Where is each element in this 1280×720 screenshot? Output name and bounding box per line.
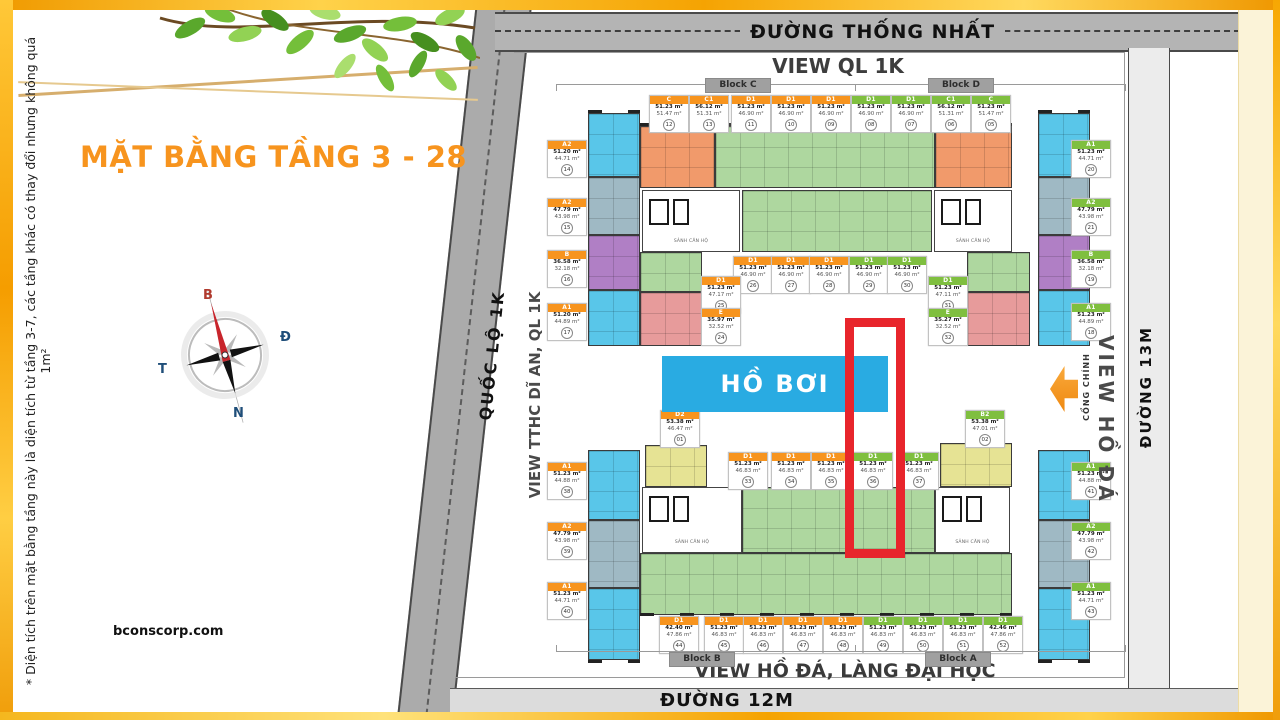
compass-rose: [155, 285, 295, 425]
compass-south-label: N: [233, 406, 244, 421]
bracket-tick: [1125, 645, 1126, 652]
unit-card-B2[interactable]: B253.38 m²47.01 m²02: [965, 410, 1005, 448]
unit-area-net: 47.86 m²: [984, 632, 1022, 639]
unit-area-gross: 51.23 m²: [852, 104, 890, 111]
unit-code: D1: [944, 617, 982, 625]
view-label-right: VIEW HỒ ĐÁ: [1094, 335, 1118, 504]
unit-card-D1[interactable]: D151.23 m²46.90 m²09: [811, 95, 851, 133]
unit-number-badge: 08: [865, 119, 877, 131]
elevator-core: [942, 496, 962, 522]
unit-card-A2[interactable]: A247.79 m²43.98 m²39: [547, 522, 587, 560]
unit-card-D1[interactable]: D151.23 m²46.90 m²08: [851, 95, 891, 133]
unit-g: [742, 487, 935, 553]
unit-card-D1[interactable]: D151.23 m²46.83 m²48: [823, 616, 863, 654]
unit-code: D1: [900, 453, 938, 461]
unit-area-gross: 51.23 m²: [1072, 591, 1110, 598]
unit-code: D1: [850, 257, 888, 265]
gold-frame-bottom: [0, 712, 1280, 720]
unit-area-gross: 51.23 m²: [972, 104, 1010, 111]
unit-card-D1[interactable]: D151.23 m²46.83 m²33: [728, 452, 768, 490]
unit-code: D1: [888, 257, 926, 265]
elevator-core: [966, 496, 982, 522]
unit-card-E[interactable]: E35.27 m²32.52 m²32: [928, 308, 968, 346]
unit-area-net: 44.71 m²: [548, 156, 586, 163]
unit-code: A1: [548, 304, 586, 312]
unit-code: D2: [661, 411, 699, 419]
unit-code: B: [1072, 251, 1110, 259]
block-b-label: Block B: [669, 652, 735, 667]
unit-area-net: 46.90 m²: [772, 272, 810, 279]
unit-number-badge: 43: [1085, 606, 1097, 618]
unit-area-gross: 35.97 m²: [702, 317, 740, 324]
unit-g: [742, 190, 932, 252]
unit-area-gross: 47.79 m²: [548, 531, 586, 538]
unit-area-net: 46.83 m²: [900, 468, 938, 475]
unit-area-gross: 51.23 m²: [650, 104, 688, 111]
bracket-tick: [556, 645, 557, 652]
unit-s: [588, 177, 640, 235]
unit-area-gross: 36.58 m²: [1072, 259, 1110, 266]
unit-card-A1[interactable]: A151.23 m²44.71 m²43: [1071, 582, 1111, 620]
unit-area-net: 46.90 m²: [892, 111, 930, 118]
unit-area-gross: 51.23 m²: [784, 625, 822, 632]
view-label-left: VIEW TTHC DĨ AN, QL 1K: [526, 285, 542, 505]
unit-number-badge: 10: [785, 119, 797, 131]
elevator-core: [673, 496, 689, 522]
unit-number-badge: 26: [747, 280, 759, 292]
unit-code: A2: [548, 141, 586, 149]
unit-area-net: 32.18 m²: [548, 266, 586, 273]
unit-code: C: [972, 96, 1010, 104]
unit-code: D1: [864, 617, 902, 625]
gold-frame-top: [0, 0, 1280, 10]
unit-code: E: [702, 309, 740, 317]
unit-code: D1: [734, 257, 772, 265]
elevator-core: [941, 199, 961, 225]
unit-area-net: 46.90 m²: [732, 111, 770, 118]
lobby-area: SẢNH CĂN HỘ: [642, 487, 742, 553]
lobby-label: SẢNH CĂN HỘ: [643, 540, 741, 545]
unit-area-net: 43.98 m²: [548, 538, 586, 545]
unit-code: D1: [772, 96, 810, 104]
unit-area-gross: 51.23 m²: [732, 104, 770, 111]
view-label-top: VIEW QL 1K: [738, 54, 938, 78]
compass-west-label: T: [158, 362, 167, 377]
balcony-dashes: [1038, 110, 1090, 113]
unit-area-net: 46.83 m²: [729, 468, 767, 475]
unit-card-A2[interactable]: A251.20 m²44.71 m²14: [547, 140, 587, 178]
unit-p: [967, 292, 1030, 346]
unit-code: A1: [1072, 583, 1110, 591]
lobby-area: SẢNH CĂN HỘ: [934, 190, 1012, 252]
unit-area-net: 46.83 m²: [705, 632, 743, 639]
unit-number-badge: 06: [945, 119, 957, 131]
bracket-tick: [1125, 84, 1126, 91]
unit-area-net: 46.83 m²: [944, 632, 982, 639]
bracket-tick: [855, 645, 856, 652]
unit-card-C[interactable]: C51.23 m²51.47 m²05: [971, 95, 1011, 133]
unit-number-badge: 35: [825, 476, 837, 488]
unit-card-D1[interactable]: D151.23 m²46.83 m²34: [771, 452, 811, 490]
unit-area-net: 46.83 m²: [904, 632, 942, 639]
unit-number-badge: 01: [674, 434, 686, 446]
unit-card-D1[interactable]: D151.23 m²46.83 m²50: [903, 616, 943, 654]
unit-code: E: [929, 309, 967, 317]
unit-code: D1: [984, 617, 1022, 625]
unit-area-gross: 51.23 m²: [888, 265, 926, 272]
unit-number-badge: 17: [561, 327, 573, 339]
unit-card-D1[interactable]: D151.23 m²46.90 m²11: [731, 95, 771, 133]
unit-code: D1: [702, 277, 740, 285]
unit-code: D1: [929, 277, 967, 285]
unit-area-gross: 51.23 m²: [904, 625, 942, 632]
unit-code: B2: [966, 411, 1004, 419]
unit-number-badge: 30: [901, 280, 913, 292]
unit-area-gross: 51.20 m²: [548, 312, 586, 319]
unit-number-badge: 40: [561, 606, 573, 618]
unit-area-net: 43.98 m²: [1072, 538, 1110, 545]
unit-area-gross: 51.23 m²: [729, 461, 767, 468]
unit-number-badge: 13: [703, 119, 715, 131]
lobby-label: SẢNH CĂN HỘ: [935, 239, 1011, 244]
unit-code: D1: [744, 617, 782, 625]
unit-area-gross: 36.58 m²: [548, 259, 586, 266]
road-13m-label: ĐƯỜNG 13M: [1137, 326, 1155, 448]
lobby-area: SẢNH CĂN HỘ: [935, 487, 1010, 553]
unit-v: [588, 235, 640, 290]
elevator-core: [649, 199, 669, 225]
unit-area-gross: 56.12 m²: [932, 104, 970, 111]
unit-card-D1[interactable]: D151.23 m²46.83 m²45: [704, 616, 744, 654]
unit-g: [967, 252, 1030, 292]
lobby-area: SẢNH CĂN HỘ: [642, 190, 740, 252]
unit-number-badge: 07: [905, 119, 917, 131]
unit-card-A1[interactable]: A151.23 m²44.71 m²20: [1071, 140, 1111, 178]
unit-area-gross: 51.20 m²: [548, 149, 586, 156]
unit-code: A1: [1072, 304, 1110, 312]
unit-number-badge: 24: [715, 332, 727, 344]
unit-area-gross: 51.23 m²: [548, 471, 586, 478]
unit-area-net: 43.98 m²: [548, 214, 586, 221]
unit-area-net: 47.17 m²: [702, 292, 740, 299]
unit-number-badge: 20: [1085, 164, 1097, 176]
unit-card-C[interactable]: C51.23 m²51.47 m²12: [649, 95, 689, 133]
unit-area-net: 47.01 m²: [966, 426, 1004, 433]
unit-number-badge: 29: [863, 280, 875, 292]
unit-card-D1[interactable]: D142.40 m²47.86 m²44: [659, 616, 699, 654]
unit-card-A1[interactable]: A151.23 m²44.71 m²40: [547, 582, 587, 620]
unit-area-gross: 51.23 m²: [1072, 312, 1110, 319]
unit-card-A1[interactable]: A151.23 m²44.88 m²38: [547, 462, 587, 500]
unit-area-net: 46.47 m²: [661, 426, 699, 433]
unit-number-badge: 15: [561, 222, 573, 234]
unit-number-badge: 42: [1085, 546, 1097, 558]
unit-o: [935, 126, 1012, 188]
unit-code: C: [650, 96, 688, 104]
unit-area-gross: 56.12 m²: [690, 104, 728, 111]
unit-code: A1: [548, 583, 586, 591]
unit-g: [640, 252, 702, 292]
unit-area-net: 51.47 m²: [972, 111, 1010, 118]
unit-code: B: [548, 251, 586, 259]
unit-card-D1[interactable]: D151.23 m²46.83 m²51: [943, 616, 983, 654]
unit-number-badge: 02: [979, 434, 991, 446]
unit-b: [588, 290, 640, 346]
unit-code: C1: [932, 96, 970, 104]
unit-code: D1: [892, 96, 930, 104]
unit-area-gross: 53.38 m²: [966, 419, 1004, 426]
unit-area-gross: 51.23 m²: [734, 265, 772, 272]
unit-card-E[interactable]: E35.97 m²32.52 m²24: [701, 308, 741, 346]
unit-card-D1[interactable]: D151.23 m²46.90 m²28: [809, 256, 849, 294]
highlighted-unit-frame[interactable]: [845, 318, 905, 558]
unit-area-net: 46.83 m²: [744, 632, 782, 639]
unit-card-B[interactable]: B36.58 m²32.18 m²16: [547, 250, 587, 288]
page-title: MẶT BẰNG TẦNG 3 - 28: [80, 140, 420, 174]
unit-code: A1: [548, 463, 586, 471]
compass-east-label: Đ: [280, 330, 291, 345]
block-bracket-bottom: [556, 651, 1126, 652]
road-12m-label: ĐƯỜNG 12M: [660, 690, 794, 711]
unit-area-net: 44.71 m²: [1072, 598, 1110, 605]
unit-card-D1[interactable]: D151.23 m²46.90 m²29: [849, 256, 889, 294]
unit-area-gross: 51.23 m²: [944, 625, 982, 632]
unit-area-net: 44.71 m²: [1072, 156, 1110, 163]
unit-area-net: 51.31 m²: [690, 111, 728, 118]
unit-area-gross: 51.23 m²: [810, 265, 848, 272]
unit-area-net: 44.89 m²: [548, 319, 586, 326]
unit-area-net: 46.90 m²: [772, 111, 810, 118]
unit-card-C1[interactable]: C156.12 m²51.31 m²06: [931, 95, 971, 133]
unit-area-net: 43.98 m²: [1072, 214, 1110, 221]
gold-frame-left: [0, 0, 13, 720]
unit-area-net: 46.83 m²: [824, 632, 862, 639]
unit-area-net: 46.90 m²: [810, 272, 848, 279]
unit-number-badge: 39: [561, 546, 573, 558]
unit-number-badge: 34: [785, 476, 797, 488]
unit-number-badge: 32: [942, 332, 954, 344]
unit-area-gross: 51.23 m²: [812, 104, 850, 111]
unit-area-gross: 51.23 m²: [864, 625, 902, 632]
unit-area-gross: 51.23 m²: [892, 104, 930, 111]
unit-code: D1: [810, 257, 848, 265]
unit-card-A2[interactable]: A247.79 m²43.98 m²21: [1071, 198, 1111, 236]
unit-area-gross: 51.23 m²: [772, 104, 810, 111]
unit-code: A2: [548, 523, 586, 531]
unit-area-net: 51.31 m²: [932, 111, 970, 118]
compass-north-label: B: [203, 288, 213, 303]
unit-g: [640, 553, 1012, 615]
unit-card-D1[interactable]: D151.23 m²46.83 m²49: [863, 616, 903, 654]
road-thong-nhat: ĐƯỜNG THỐNG NHẤT: [495, 12, 1240, 52]
website-text: bconscorp.com: [113, 624, 223, 639]
unit-area-gross: 35.27 m²: [929, 317, 967, 324]
unit-area-gross: 51.23 m²: [772, 265, 810, 272]
main-gate-label: CỔNG CHÍNH: [1082, 345, 1092, 429]
unit-area-gross: 51.23 m²: [705, 625, 743, 632]
unit-code: D1: [812, 96, 850, 104]
unit-area-gross: 51.23 m²: [548, 591, 586, 598]
unit-area-gross: 51.23 m²: [929, 285, 967, 292]
unit-area-net: 46.90 m²: [852, 111, 890, 118]
unit-area-net: 47.11 m²: [929, 292, 967, 299]
unit-card-D1[interactable]: D151.23 m²46.90 m²10: [771, 95, 811, 133]
unit-code: A1: [1072, 141, 1110, 149]
unit-code: D1: [824, 617, 862, 625]
unit-card-B[interactable]: B36.58 m²32.18 m²19: [1071, 250, 1111, 288]
unit-o: [640, 126, 715, 188]
unit-number-badge: 19: [1085, 274, 1097, 286]
unit-number-badge: 38: [561, 486, 573, 498]
unit-code: D1: [732, 96, 770, 104]
unit-number-badge: 28: [823, 280, 835, 292]
unit-number-badge: 12: [663, 119, 675, 131]
unit-number-badge: 27: [785, 280, 797, 292]
unit-card-D1[interactable]: D151.23 m²46.90 m²07: [891, 95, 931, 133]
unit-number-badge: 11: [745, 119, 757, 131]
unit-b: [588, 588, 640, 660]
unit-area-net: 51.47 m²: [650, 111, 688, 118]
unit-area-net: 32.52 m²: [929, 324, 967, 331]
unit-area-net: 44.71 m²: [548, 598, 586, 605]
unit-card-D1[interactable]: D151.23 m²46.90 m²27: [771, 256, 811, 294]
unit-area-gross: 51.23 m²: [1072, 149, 1110, 156]
unit-code: A2: [1072, 523, 1110, 531]
unit-card-C1[interactable]: C156.12 m²51.31 m²13: [689, 95, 729, 133]
unit-code: D1: [852, 96, 890, 104]
unit-card-D1[interactable]: D151.23 m²46.83 m²37: [899, 452, 939, 490]
road-12m: ĐƯỜNG 12M: [450, 688, 1240, 714]
unit-number-badge: 14: [561, 164, 573, 176]
unit-area-net: 32.52 m²: [702, 324, 740, 331]
balcony-dashes: [588, 110, 640, 113]
unit-number-badge: 33: [742, 476, 754, 488]
unit-code: D1: [772, 453, 810, 461]
unit-b: [588, 113, 640, 177]
unit-area-net: 46.83 m²: [784, 632, 822, 639]
unit-y: [645, 445, 707, 487]
unit-area-net: 46.90 m²: [888, 272, 926, 279]
floorplan-poster: * Diện tích trên mặt bằng tầng này là di…: [0, 0, 1280, 720]
unit-number-badge: 21: [1085, 222, 1097, 234]
gold-frame-right: [1273, 0, 1280, 720]
unit-area-net: 44.89 m²: [1072, 319, 1110, 326]
unit-area-gross: 42.40 m²: [660, 625, 698, 632]
road-13m: ĐƯỜNG 13M: [1128, 48, 1170, 712]
unit-area-net: 46.90 m²: [812, 111, 850, 118]
unit-b: [588, 450, 640, 520]
unit-area-gross: 51.23 m²: [702, 285, 740, 292]
unit-p: [640, 292, 702, 346]
area-disclaimer: * Diện tích trên mặt bằng tầng này là di…: [23, 36, 41, 686]
unit-code: D1: [904, 617, 942, 625]
unit-card-D1[interactable]: D151.23 m²46.90 m²30: [887, 256, 927, 294]
unit-card-D1[interactable]: D151.23 m²46.83 m²47: [783, 616, 823, 654]
road-thong-nhat-label: ĐƯỜNG THỐNG NHẤT: [740, 21, 1005, 43]
unit-card-A1[interactable]: A151.20 m²44.89 m²17: [547, 303, 587, 341]
unit-area-net: 47.86 m²: [660, 632, 698, 639]
unit-area-gross: 53.38 m²: [661, 419, 699, 426]
unit-code: D1: [784, 617, 822, 625]
lobby-label: SẢNH CĂN HỘ: [936, 540, 1009, 545]
unit-number-badge: 37: [913, 476, 925, 488]
unit-number-badge: 09: [825, 119, 837, 131]
unit-code: D1: [772, 257, 810, 265]
unit-area-gross: 42.46 m²: [984, 625, 1022, 632]
unit-area-net: 32.18 m²: [1072, 266, 1110, 273]
unit-area-gross: 47.79 m²: [548, 207, 586, 214]
unit-s: [588, 520, 640, 588]
unit-code: D1: [705, 617, 743, 625]
unit-area-gross: 51.23 m²: [850, 265, 888, 272]
elevator-core: [673, 199, 689, 225]
unit-area-net: 46.90 m²: [850, 272, 888, 279]
foliage-decoration: [150, 0, 480, 110]
elevator-core: [965, 199, 981, 225]
bracket-tick: [855, 84, 856, 91]
unit-y: [940, 443, 1012, 487]
bracket-tick: [556, 84, 557, 91]
unit-area-net: 46.83 m²: [772, 468, 810, 475]
block-bracket-top: [556, 84, 1126, 85]
unit-area-gross: 51.23 m²: [900, 461, 938, 468]
lobby-label: SẢNH CĂN HỘ: [643, 239, 739, 244]
unit-code: A2: [1072, 199, 1110, 207]
block-c-label: Block C: [705, 78, 771, 93]
unit-card-D1[interactable]: D142.46 m²47.86 m²52: [983, 616, 1023, 654]
elevator-core: [649, 496, 669, 522]
unit-code: A2: [548, 199, 586, 207]
unit-card-A2[interactable]: A247.79 m²43.98 m²15: [547, 198, 587, 236]
block-d-label: Block D: [928, 78, 994, 93]
unit-area-gross: 47.79 m²: [1072, 207, 1110, 214]
unit-area-net: 46.83 m²: [864, 632, 902, 639]
unit-card-D1[interactable]: D151.23 m²46.83 m²46: [743, 616, 783, 654]
unit-area-net: 44.88 m²: [548, 478, 586, 485]
unit-code: C1: [690, 96, 728, 104]
unit-number-badge: 16: [561, 274, 573, 286]
block-a-label: Block A: [925, 652, 991, 667]
unit-code: D1: [729, 453, 767, 461]
unit-card-A2[interactable]: A247.79 m²43.98 m²42: [1071, 522, 1111, 560]
unit-area-gross: 51.23 m²: [772, 461, 810, 468]
unit-code: D1: [660, 617, 698, 625]
unit-g: [715, 126, 935, 188]
unit-number-badge: 05: [985, 119, 997, 131]
unit-area-gross: 51.23 m²: [744, 625, 782, 632]
unit-card-D2[interactable]: D253.38 m²46.47 m²01: [660, 410, 700, 448]
unit-area-gross: 51.23 m²: [824, 625, 862, 632]
unit-area-gross: 47.79 m²: [1072, 531, 1110, 538]
